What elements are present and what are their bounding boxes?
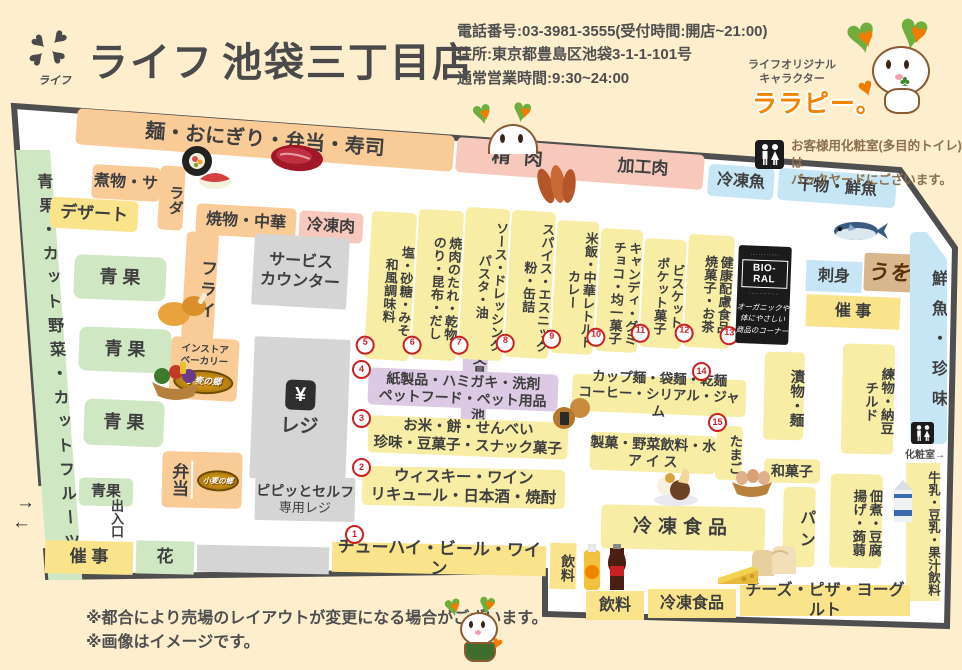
cheese-illustration: [714, 558, 762, 590]
dept-tsukudani-tofu: 佃煮・豆腐 揚げ・蒟蒻: [829, 473, 883, 568]
arrow-right-icon: →: [16, 492, 35, 514]
dept-rice-snack: お米・餅・せんべい 珍味・豆菓子・スナック菓子: [367, 415, 568, 460]
dept-event-left: 催 事: [45, 540, 134, 575]
aisle-number: 8: [495, 333, 515, 353]
sausage-illustration: [528, 164, 580, 206]
sushi-illustration: [175, 143, 237, 191]
aisle-number: 4: [352, 360, 371, 379]
dept-whisky-sake: ウィスキー・ワイン リキュール・日本酒・焼酎: [362, 466, 566, 509]
aisle-number: 2: [352, 458, 371, 477]
dept-drinks-vertical: 飲料: [550, 543, 577, 590]
service-counter: サービス カウンター: [251, 233, 350, 309]
register-area: ¥ レジ: [249, 336, 350, 482]
dept-chuhai-beer-wine: チューハイ・ビール・ワイン: [332, 542, 547, 576]
larapy-peek-illustration: ♥ ♥ ♥ ♥: [468, 96, 560, 156]
dept-dessert: デザート: [49, 197, 139, 233]
aisle-number: 3: [352, 409, 371, 428]
aisle-number: 1: [345, 525, 364, 544]
dept-frozen-fish: 冷凍魚: [707, 164, 775, 201]
dept-pickles-noodle: 漬物・麺: [763, 352, 805, 441]
aisle-number: 5: [355, 335, 375, 355]
yen-icon: ¥: [285, 379, 316, 410]
restroom-icon: [911, 422, 934, 444]
vegetable-basket-illustration: [146, 360, 206, 404]
checkout-counter-band: [197, 545, 330, 575]
aisle-number: 11: [630, 323, 650, 343]
dept-event-right: 催 事: [805, 294, 900, 330]
aisle-number: 7: [449, 335, 469, 355]
dept-fresh-fish-delicacy-band: 鮮魚・珍味: [910, 232, 947, 444]
aisle-number: 9: [542, 329, 562, 349]
fish-illustration: [830, 216, 888, 246]
self-register: ピピッとセルフ 専用レジ: [255, 476, 356, 522]
mascot-eye: [518, 134, 523, 143]
dept-frozen-bottom: 冷凍食品: [648, 589, 736, 618]
aisle-number: 15: [708, 413, 727, 432]
arrow-left-icon: ←: [12, 512, 31, 534]
dept-paper-pet: 紙製品・ハミガキ・洗剤 ペットフード・ペット用品: [367, 367, 558, 411]
dept-sashimi: 刺身: [805, 260, 862, 293]
mascot-eye: [469, 621, 473, 628]
aisle-number: 10: [586, 327, 606, 347]
mascot-mouth: [475, 630, 481, 635]
dept-flowers: 花: [136, 540, 195, 574]
arrow-right-icon: →: [935, 450, 945, 461]
dept-fishcake-natto-chilled: 練物・納豆 チルド: [841, 343, 895, 454]
larapy-bottom-illustration: ♥ ♥ ♥ ♥ ♥: [438, 590, 518, 666]
bio-ral-logo: BIO-RAL: [741, 259, 788, 289]
ice-cream-illustration: [650, 460, 704, 508]
dept-processed-meat: 加工肉: [617, 156, 669, 180]
restroom-icon: [755, 140, 784, 169]
dept-bento: 弁当 小麦の郷: [161, 451, 242, 509]
restroom-notice: お客様用化粧室(多目的トイレ)は バックヤードにございます。: [791, 138, 962, 189]
aisle-health-tea: 健康配慮食品焼菓子・お茶 12 13: [683, 234, 735, 349]
drink-bottles-illustration: [576, 540, 630, 594]
bio-ral-corner: ··········· BIO-RAL ··········· オーガニックや …: [735, 245, 792, 345]
fried-chicken-illustration: [150, 286, 212, 336]
komugi-no-sato-logo: 小麦の郷: [197, 469, 239, 491]
dept-cup-noodle-coffee: カップ麺・袋麺・乾麺 コーヒー・シリアル・ジャム: [571, 374, 746, 418]
mascot-eye: [481, 621, 485, 628]
aisle-number: 12: [674, 323, 694, 343]
eggs-basket-illustration: [728, 466, 776, 500]
aisle-number: 14: [692, 362, 711, 381]
rice-cracker-illustration: [550, 396, 596, 436]
dept-produce-box: 青 果: [83, 398, 165, 447]
restroom-label: 化粧室→: [905, 446, 945, 461]
aisle-number: 6: [402, 335, 422, 355]
mascot-eye: [500, 134, 505, 143]
dept-cheese-pizza-yogurt: チーズ・ピザ・ヨーグルト: [740, 585, 910, 616]
entrance-exit-label: 出入口: [96, 488, 124, 548]
dept-drinks-bottom: 飲料: [586, 591, 644, 620]
milk-carton-illustration: [886, 476, 920, 528]
raw-meat-illustration: [267, 138, 327, 178]
image-disclaimer: ※画像はイメージです。: [86, 628, 260, 652]
dept-nimono-salad: 煮物・サ: [91, 164, 161, 202]
